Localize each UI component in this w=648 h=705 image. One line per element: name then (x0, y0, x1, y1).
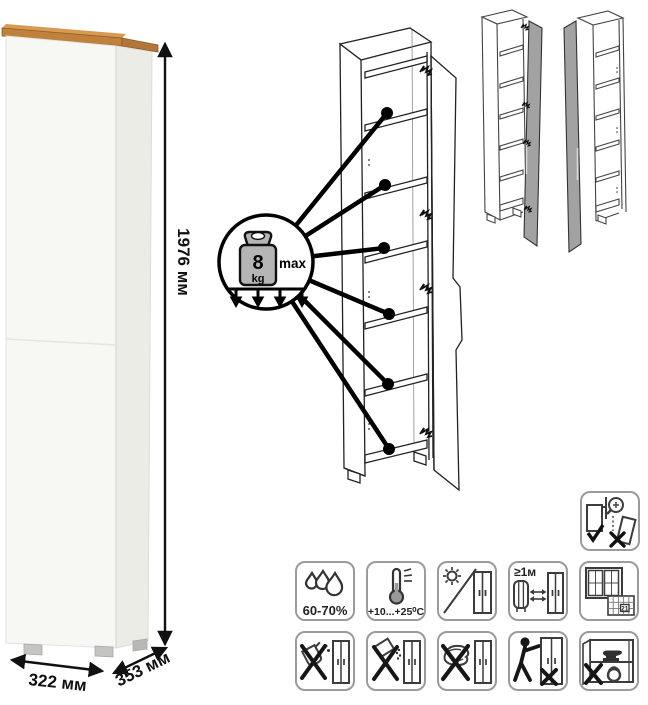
wall-anchor-required-icon (580, 491, 640, 551)
door-variant-right-hinged (564, 11, 626, 252)
humidity-icon: 60-70% (295, 561, 355, 621)
no-overload-art (581, 633, 637, 689)
no-direct-sunlight-icon (437, 561, 497, 621)
no-dragging-icon (508, 631, 568, 691)
open-door (431, 56, 462, 490)
heat-source-distance-icon: ≥1м (508, 561, 568, 621)
no-shelf-overload-icon (579, 631, 639, 691)
width-arrow (12, 660, 102, 671)
width-dimension-label: 322 мм (28, 670, 88, 695)
ventilation-art: 21 (581, 563, 637, 619)
temperature-art: +10...+25⁰C (368, 563, 424, 619)
depth-dimension-label: 353 мм (112, 648, 173, 691)
load-unit: kg (252, 273, 265, 285)
ventilation-calendar-icon: 21 (579, 561, 639, 621)
cabinet-side (116, 46, 152, 648)
weight-icon: 8 kg (240, 232, 276, 285)
load-value: 8 (252, 252, 263, 274)
no-liquids-icon (295, 631, 355, 691)
product-photo: 1976 мм 322 мм 353 мм (2, 24, 193, 695)
load-max-label: max (279, 256, 307, 271)
no-abrasive-powder-icon (366, 631, 426, 691)
airing-day-label: 21 (621, 605, 629, 612)
temperature-label: +10...+25⁰C (368, 606, 424, 618)
wall-anchor-art (582, 493, 638, 549)
height-dimension-label: 1976 мм (174, 228, 193, 296)
humidity-label: 60-70% (303, 603, 348, 618)
door-variant-left-hinged (482, 10, 542, 246)
no-drag-art (510, 633, 566, 689)
no-powder-art (368, 633, 424, 689)
shelves (365, 109, 427, 463)
no-sponge-art (439, 633, 495, 689)
heat-distance-art: ≥1м (510, 563, 566, 619)
temperature-icon: +10...+25⁰C (366, 561, 426, 621)
humidity-art: 60-70% (297, 563, 353, 619)
no-abrasive-sponge-icon (437, 631, 497, 691)
no-liquids-art (297, 633, 353, 689)
exploded-view (340, 28, 462, 490)
heat-distance-label: ≥1м (514, 565, 536, 579)
shelf-dots (378, 107, 395, 455)
product-diagram: 1976 мм 322 мм 353 мм (0, 0, 648, 700)
sunlight-art (439, 563, 495, 619)
